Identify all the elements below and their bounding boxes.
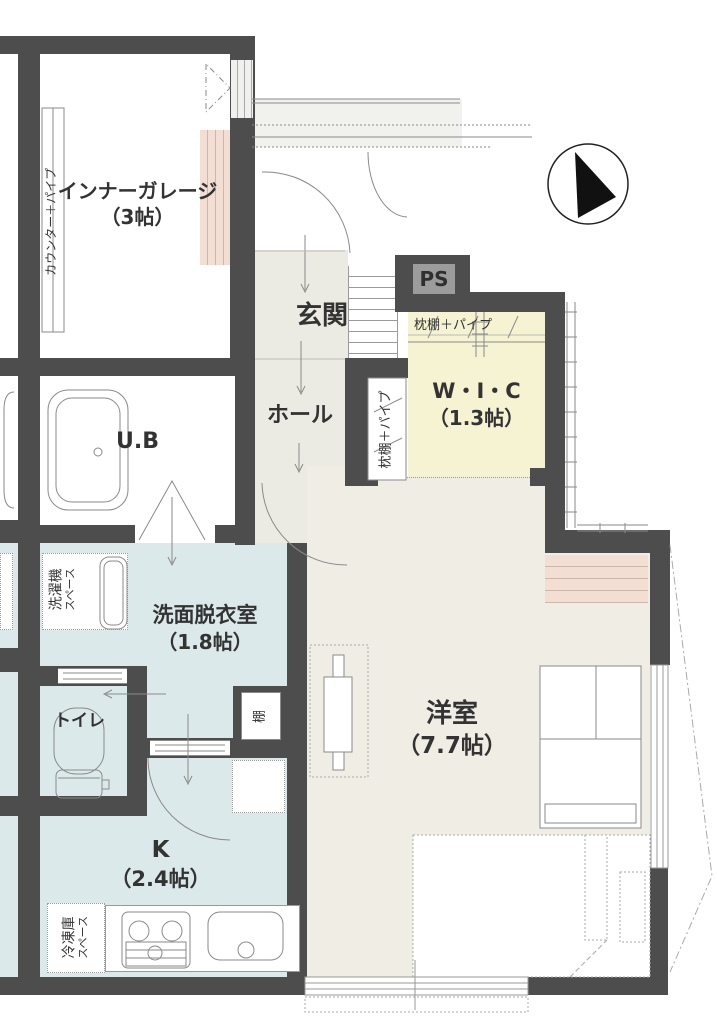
- freezer-space-line2: スペース: [78, 881, 91, 993]
- kitchen-name: K: [98, 836, 223, 866]
- wic-size: （1.3帖）: [408, 405, 545, 431]
- wall: [0, 648, 18, 672]
- wall: [215, 525, 235, 543]
- kitchen-label: K （2.4帖）: [98, 836, 223, 893]
- compass-north-arrow: [548, 144, 628, 224]
- wic-name: W・I・C: [408, 378, 545, 405]
- wic-threshold: [378, 477, 530, 486]
- western-room-opening: [307, 466, 345, 486]
- pillow-shelf-top-label: 枕棚＋パイプ: [414, 318, 534, 335]
- wall: [235, 358, 255, 545]
- floor-plan: PS: [0, 0, 717, 1024]
- washer-space-line2: スペース: [65, 534, 78, 644]
- porch-step: [252, 99, 462, 147]
- western-room-size: （7.7帖）: [378, 732, 526, 762]
- shelf-label: 棚: [253, 702, 270, 730]
- wall: [127, 666, 147, 816]
- washer-space-label: 洗濯機 スペース: [49, 534, 78, 644]
- wall: [0, 520, 18, 543]
- wall: [528, 977, 668, 995]
- entrance-label: 玄関: [262, 300, 382, 334]
- wall: [650, 868, 668, 995]
- washer-space-line1: 洗濯機: [49, 534, 65, 644]
- sliding-door-toilet: [58, 668, 127, 684]
- western-room-floor-right: [545, 553, 650, 977]
- western-room-name: 洋室: [378, 698, 526, 732]
- pipe-space-box: PS: [413, 264, 455, 294]
- garage-size: （3帖）: [45, 204, 230, 230]
- freezer-space-label: 冷凍庫 スペース: [62, 881, 91, 993]
- garage-name: インナーガレージ: [45, 178, 230, 204]
- counter-dotted-box: [232, 760, 285, 813]
- western-room-label: 洋室 （7.7帖）: [378, 698, 526, 762]
- wall: [18, 36, 40, 995]
- kitchen-counter: [105, 905, 300, 972]
- sliding-door-washroom-kitchen: [150, 740, 230, 756]
- unit-bath-label: U.B: [95, 428, 180, 457]
- wall: [345, 468, 378, 486]
- washroom-name: 洗面脱衣室: [115, 602, 295, 629]
- western-room-step-unit: [545, 555, 648, 603]
- wall: [545, 292, 565, 532]
- hall-label: ホール: [250, 402, 350, 431]
- washroom-label: 洗面脱衣室 （1.8帖）: [115, 602, 295, 655]
- washroom-size: （1.8帖）: [115, 629, 295, 655]
- pipe-space-label: PS: [419, 266, 448, 292]
- pillow-shelf-side-label: 枕棚＋パイプ: [379, 377, 396, 481]
- wall: [0, 358, 255, 376]
- garage-label: インナーガレージ （3帖）: [45, 178, 230, 230]
- garage-shutter: [231, 60, 253, 118]
- hall-vestibule-floor: [255, 470, 307, 545]
- wall: [0, 977, 307, 995]
- wic-label: W・I・C （1.3帖）: [408, 378, 545, 431]
- wall: [0, 796, 147, 816]
- counter-pipe-label: カウンター＋パイプ: [44, 162, 60, 282]
- toilet-label: トイレ: [42, 710, 117, 732]
- freezer-space-line1: 冷凍庫: [62, 881, 78, 993]
- kitchen-size: （2.4帖）: [98, 866, 223, 893]
- wall: [650, 530, 670, 665]
- neighbor-dotted-box: [0, 553, 13, 630]
